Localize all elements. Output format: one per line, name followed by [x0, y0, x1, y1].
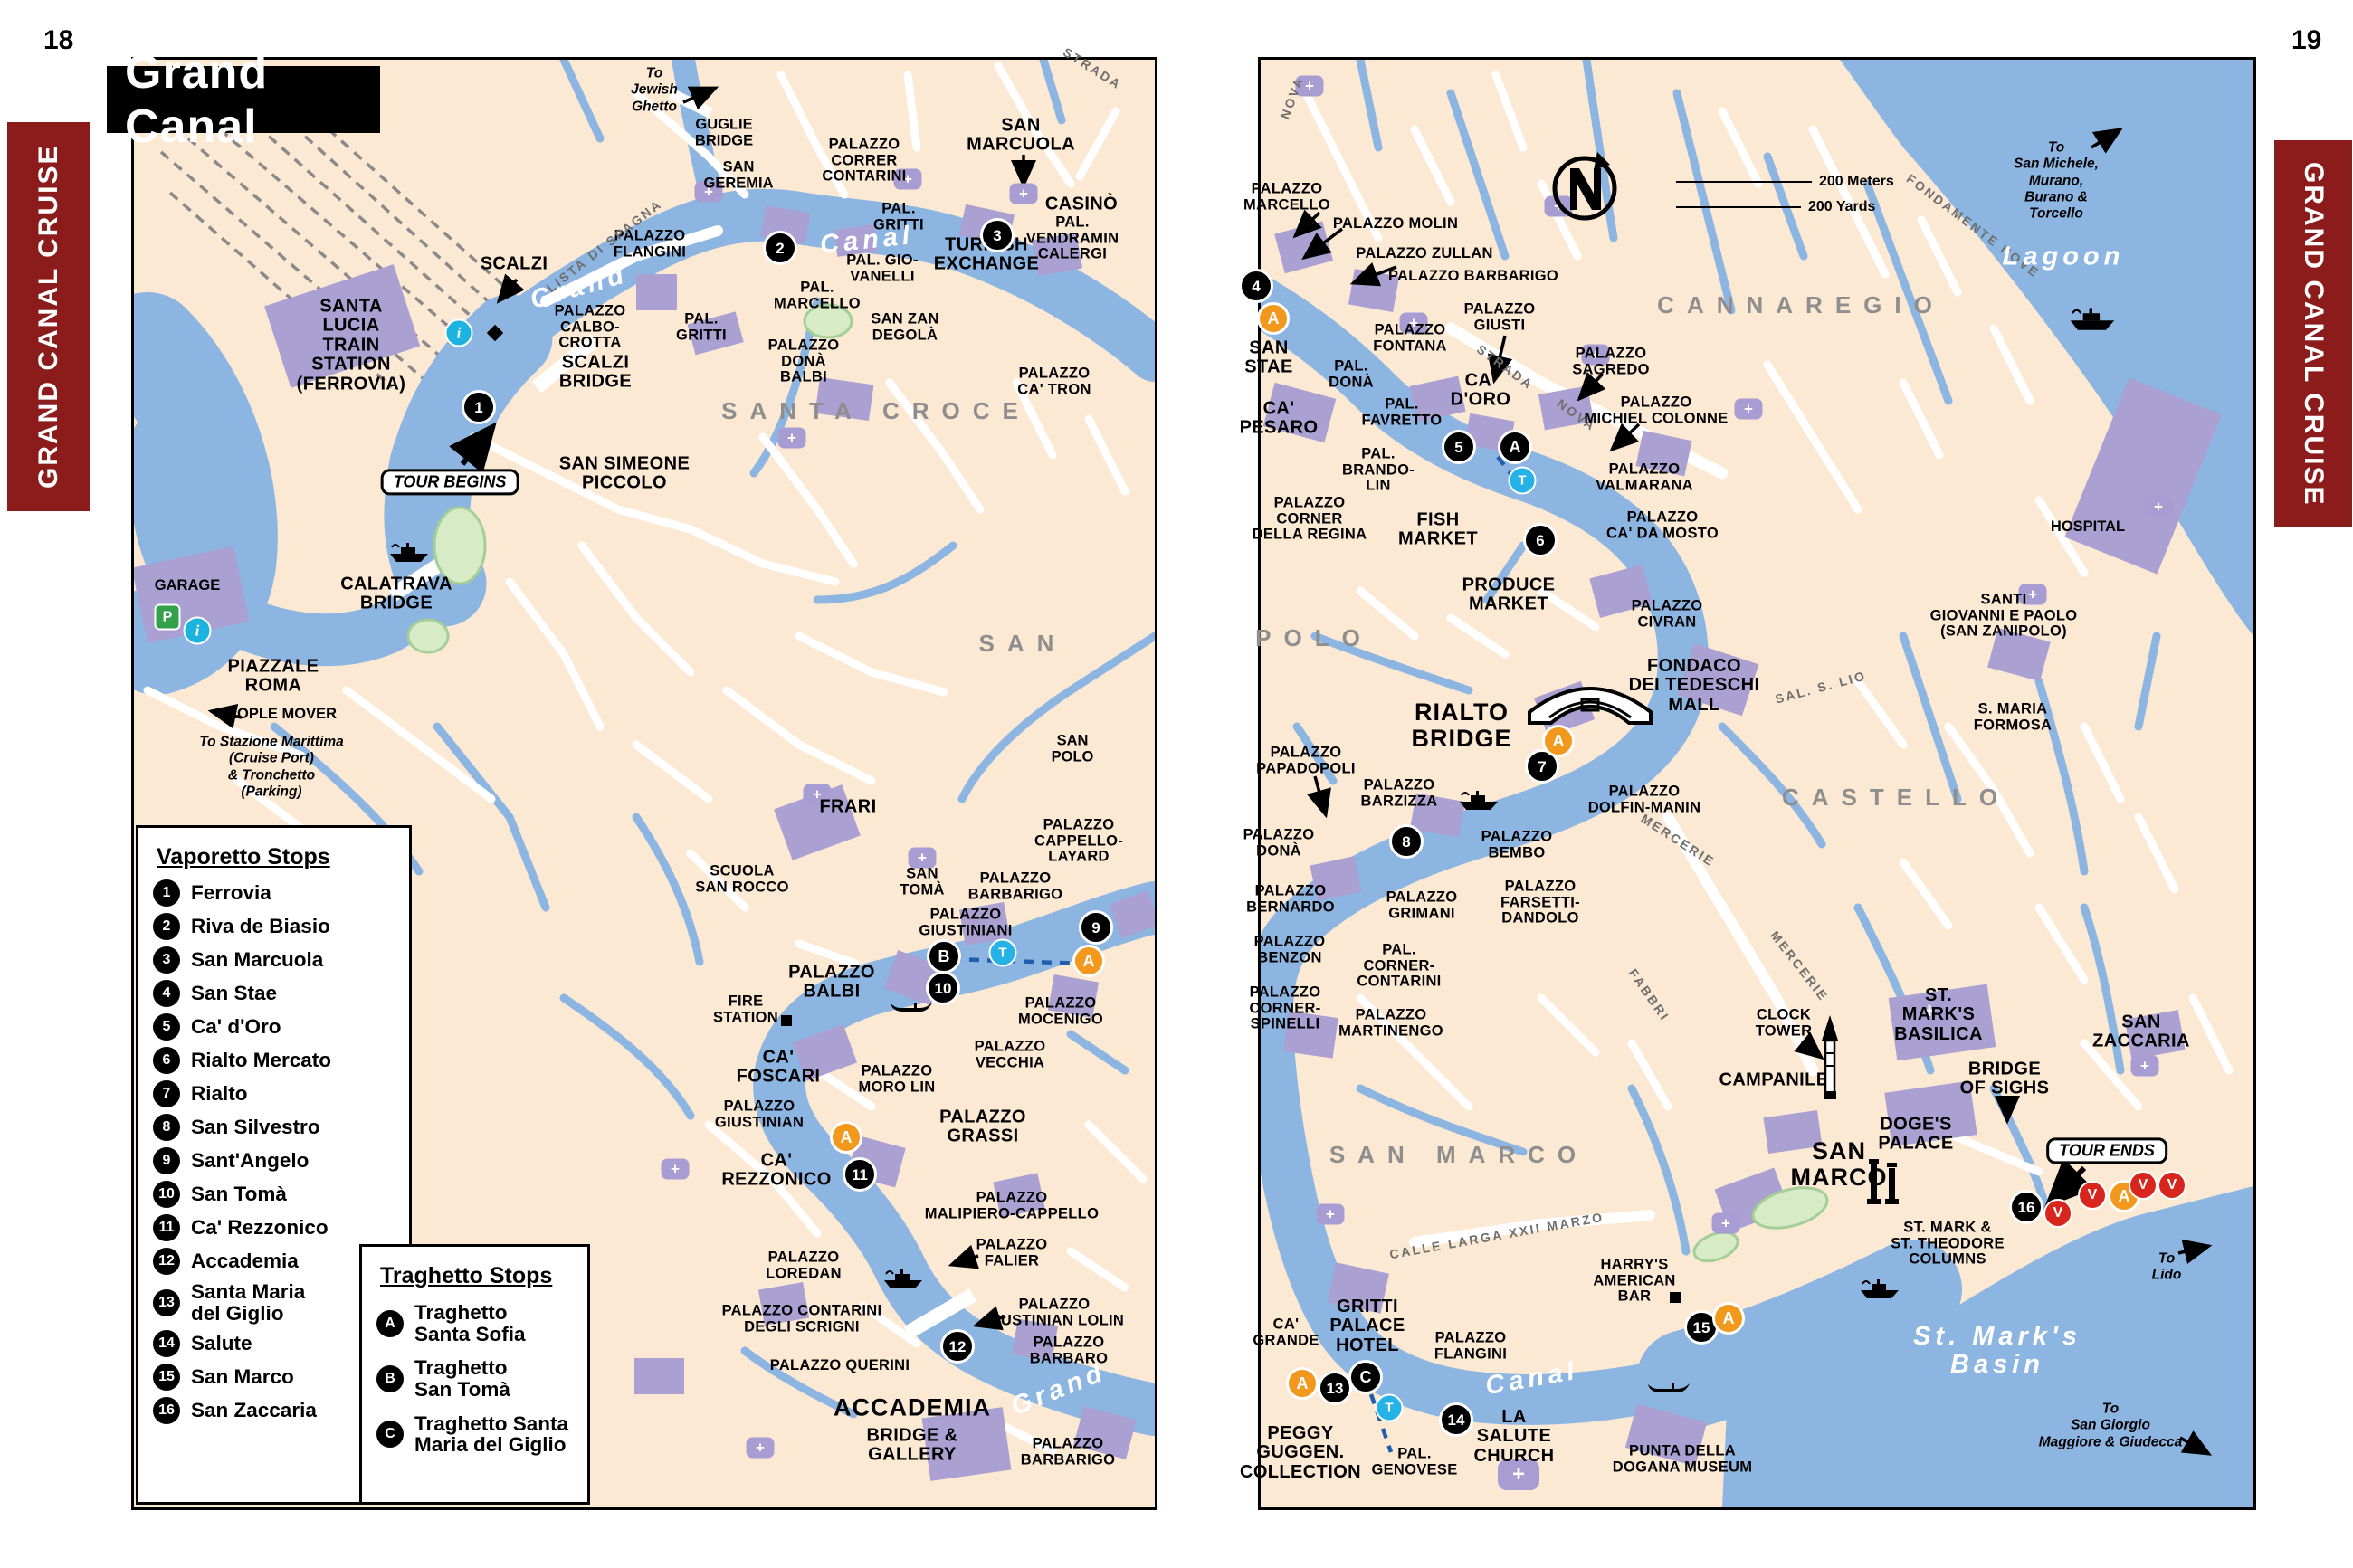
vaporetto-stop-marker-2: 2 — [763, 231, 797, 265]
vaporetto-dock-marker-v: V — [2129, 1171, 2158, 1200]
alilaguna-stop-marker-a: A — [1072, 945, 1105, 977]
church-icon: + — [1735, 399, 1763, 420]
vaporetto-item-ca-rezzonico: 11Ca' Rezzonico — [153, 1214, 395, 1241]
vaporetto-badge-2: 2 — [153, 913, 180, 940]
vaporetto-stop-marker-6: 6 — [1523, 523, 1558, 557]
traghetto-crossing-line — [1371, 457, 1529, 1452]
vaporetto-stop-marker-4: 4 — [1239, 269, 1273, 303]
alilaguna-stop-marker-a: A — [1257, 302, 1290, 335]
traghetto-badge-b: B — [376, 1365, 404, 1392]
traghetto-item-traghetto: ATraghetto Santa Sofia — [376, 1302, 573, 1345]
traghetto-badge-a: A — [376, 1310, 404, 1337]
traghetto-label: Traghetto Santa Maria del Giglio — [414, 1413, 568, 1456]
north-arrow-icon — [1543, 147, 1626, 234]
vaporetto-label: San Tomà — [191, 1183, 287, 1205]
church-icon: + — [894, 169, 922, 190]
vaporetto-badge-9: 9 — [153, 1147, 180, 1174]
info-icon-i: i — [184, 617, 212, 645]
boat-icon — [1859, 1277, 1900, 1300]
church-icon: + — [1296, 76, 1324, 97]
vaporetto-badge-4: 4 — [153, 980, 180, 1007]
vaporetto-badge-6: 6 — [153, 1047, 180, 1074]
vaporetto-stop-marker-3: 3 — [980, 218, 1015, 252]
ship-icon — [2068, 305, 2117, 332]
vaporetto-item-san-silvestro: 8San Silvestro — [153, 1114, 395, 1141]
legend-traghetto-title: Traghetto Stops — [380, 1263, 573, 1289]
vaporetto-item-ca-d-oro: 5Ca' d'Oro — [153, 1013, 395, 1041]
church-icon: + — [1010, 184, 1038, 204]
vaporetto-label: Ferrovia — [191, 882, 271, 904]
traghetto-item-traghetto-santa: CTraghetto Santa Maria del Giglio — [376, 1413, 573, 1456]
vaporetto-badge-5: 5 — [153, 1013, 180, 1041]
vaporetto-label: San Silvestro — [191, 1117, 320, 1138]
traghetto-stop-marker-a: A — [1498, 430, 1532, 464]
vaporetto-label: San Zaccaria — [191, 1400, 317, 1421]
vaporetto-item-san-marcuola: 3San Marcuola — [153, 946, 395, 974]
church-icon: + — [1909, 996, 1950, 1027]
alilaguna-stop-marker-a: A — [830, 1121, 862, 1154]
vaporetto-dock-marker-v: V — [2158, 1171, 2186, 1200]
campanile-icon — [1818, 1013, 1842, 1104]
vaporetto-dock-marker-v: V — [2043, 1199, 2072, 1228]
vaporetto-badge-16: 16 — [153, 1397, 180, 1424]
guidebook-map-spread: 18 19 GRAND CANAL CRUISE GRAND CANAL CRU… — [0, 0, 2353, 1568]
vaporetto-stop-marker-16: 16 — [2009, 1190, 2043, 1224]
church-icon: + — [1498, 1459, 1539, 1490]
vaporetto-badge-10: 10 — [153, 1181, 180, 1208]
alilaguna-stop-marker-a: A — [1542, 725, 1575, 757]
parking-icon-p: P — [155, 604, 181, 631]
vaporetto-stop-marker-14: 14 — [1439, 1402, 1473, 1437]
rialto-bridge-icon — [1522, 676, 1658, 728]
vaporetto-stop-marker-12: 12 — [940, 1329, 975, 1364]
traghetto-stop-marker-b: B — [927, 939, 961, 974]
vaporetto-label: San Marco — [191, 1366, 294, 1388]
traghetto-crossing-marker-t: T — [1376, 1394, 1404, 1422]
church-icon: + — [2019, 584, 2047, 605]
traghetto-label: Traghetto San Tomà — [414, 1357, 510, 1400]
boat-icon — [882, 1267, 924, 1290]
legend-vaporetto-title: Vaporetto Stops — [157, 844, 395, 870]
vaporetto-stop-marker-1: 1 — [462, 390, 496, 424]
vaporetto-label: Rialto Mercato — [191, 1050, 331, 1071]
traghetto-badge-c: C — [376, 1421, 404, 1448]
church-icon: + — [804, 784, 832, 805]
vaporetto-stop-marker-11: 11 — [843, 1157, 877, 1192]
vaporetto-stop-marker-10: 10 — [926, 971, 960, 1005]
vaporetto-item-accademia: 12Accademia — [153, 1248, 395, 1275]
vaporetto-stop-marker-5: 5 — [1442, 430, 1476, 464]
vaporetto-label: San Stae — [191, 983, 277, 1004]
vaporetto-item-salute: 14Salute — [153, 1330, 395, 1357]
vaporetto-item-san-tom: 10San Tomà — [153, 1181, 395, 1208]
church-icon: + — [747, 1438, 775, 1459]
vaporetto-label: Ca' Rezzonico — [191, 1217, 329, 1239]
vaporetto-item-sant-angelo: 9Sant'Angelo — [153, 1147, 395, 1174]
church-icon: + — [909, 848, 937, 869]
church-icon: + — [2145, 497, 2173, 518]
legend-vaporetto-list: 1Ferrovia2Riva de Biasio3San Marcuola4Sa… — [153, 879, 395, 1424]
sidebar-right-tab: GRAND CANAL CRUISE — [2274, 140, 2352, 527]
vaporetto-item-san-marco: 15San Marco — [153, 1364, 395, 1391]
gondola-icon — [1646, 1381, 1691, 1395]
page-number-left: 18 — [43, 25, 73, 56]
vaporetto-stop-marker-9: 9 — [1079, 910, 1113, 945]
vaporetto-label: Sant'Angelo — [191, 1150, 309, 1172]
vaporetto-label: Salute — [191, 1333, 252, 1354]
vaporetto-stop-marker-8: 8 — [1389, 824, 1424, 859]
gondola-icon — [889, 1000, 934, 1014]
columns-icon — [1864, 1157, 1900, 1210]
vaporetto-badge-8: 8 — [153, 1114, 180, 1141]
vaporetto-item-san-stae: 4San Stae — [153, 980, 395, 1007]
vaporetto-item-santa-maria: 13Santa Maria del Giglio — [153, 1281, 395, 1324]
vaporetto-label: Riva de Biasio — [191, 916, 330, 937]
traghetto-stop-marker-c: C — [1348, 1360, 1383, 1394]
vaporetto-badge-3: 3 — [153, 946, 180, 974]
sidebar-left-tab: GRAND CANAL CRUISE — [7, 122, 90, 511]
boat-icon — [1458, 788, 1500, 812]
legend-traghetto-stops: Traghetto Stops ATraghetto Santa SofiaBT… — [359, 1244, 590, 1505]
church-icon: + — [1317, 1204, 1345, 1225]
vaporetto-badge-14: 14 — [153, 1330, 180, 1357]
traghetto-crossing-marker-t: T — [1509, 467, 1537, 495]
vaporetto-badge-11: 11 — [153, 1214, 180, 1241]
scale-yards-label: 200 Yards — [1808, 199, 1875, 215]
vaporetto-badge-12: 12 — [153, 1248, 180, 1275]
page-number-right: 19 — [2291, 25, 2321, 56]
vaporetto-dock-marker-v: V — [2078, 1181, 2107, 1210]
building-point-icon — [781, 1015, 792, 1026]
vaporetto-label: Accademia — [191, 1250, 299, 1272]
vaporetto-badge-15: 15 — [153, 1364, 180, 1391]
building-point-icon — [1670, 1292, 1681, 1303]
vaporetto-label: Ca' d'Oro — [191, 1016, 281, 1038]
scale-meters-label: 200 Meters — [1819, 174, 1894, 190]
church-icon: + — [1712, 1213, 1740, 1234]
vaporetto-stop-marker-13: 13 — [1318, 1371, 1352, 1405]
alilaguna-stop-marker-a: A — [1712, 1302, 1745, 1335]
vaporetto-label: San Marcuola — [191, 949, 323, 971]
traghetto-item-traghetto: BTraghetto San Tomà — [376, 1357, 573, 1400]
info-icon-i: i — [445, 319, 473, 347]
vaporetto-item-rialto-mercato: 6Rialto Mercato — [153, 1047, 395, 1074]
legend-traghetto-list: ATraghetto Santa SofiaBTraghetto San Tom… — [376, 1302, 573, 1456]
church-icon: + — [1582, 345, 1610, 366]
church-icon: + — [662, 1159, 690, 1180]
vaporetto-item-san-zaccaria: 16San Zaccaria — [153, 1397, 395, 1424]
church-icon: + — [1400, 313, 1428, 334]
church-icon: + — [778, 428, 806, 449]
vaporetto-item-ferrovia: 1Ferrovia — [153, 879, 395, 907]
vaporetto-badge-1: 1 — [153, 879, 180, 907]
vaporetto-item-rialto: 7Rialto — [153, 1080, 395, 1107]
vaporetto-badge-13: 13 — [153, 1289, 180, 1316]
traghetto-label: Traghetto Santa Sofia — [414, 1302, 526, 1345]
vaporetto-badge-7: 7 — [153, 1080, 180, 1107]
scale-line-yards — [1676, 206, 1801, 208]
scale-bar: 200 Meters 200 Yards — [1676, 174, 1894, 215]
traghetto-crossing-marker-t: T — [989, 939, 1017, 967]
alilaguna-stop-marker-a: A — [1286, 1367, 1319, 1400]
church-icon: + — [695, 182, 723, 203]
scale-line-meters — [1676, 181, 1812, 183]
map-title: Grand Canal — [107, 66, 380, 133]
map-right-geography: {"":""} — [1261, 60, 2253, 1507]
boat-icon — [388, 540, 430, 564]
map-page-right: {"":""} — [1258, 57, 2256, 1510]
vaporetto-item-riva-de-biasio: 2Riva de Biasio — [153, 913, 395, 940]
vaporetto-label: Santa Maria del Giglio — [191, 1281, 305, 1324]
church-icon: + — [2131, 1056, 2159, 1077]
vaporetto-label: Rialto — [191, 1083, 248, 1105]
